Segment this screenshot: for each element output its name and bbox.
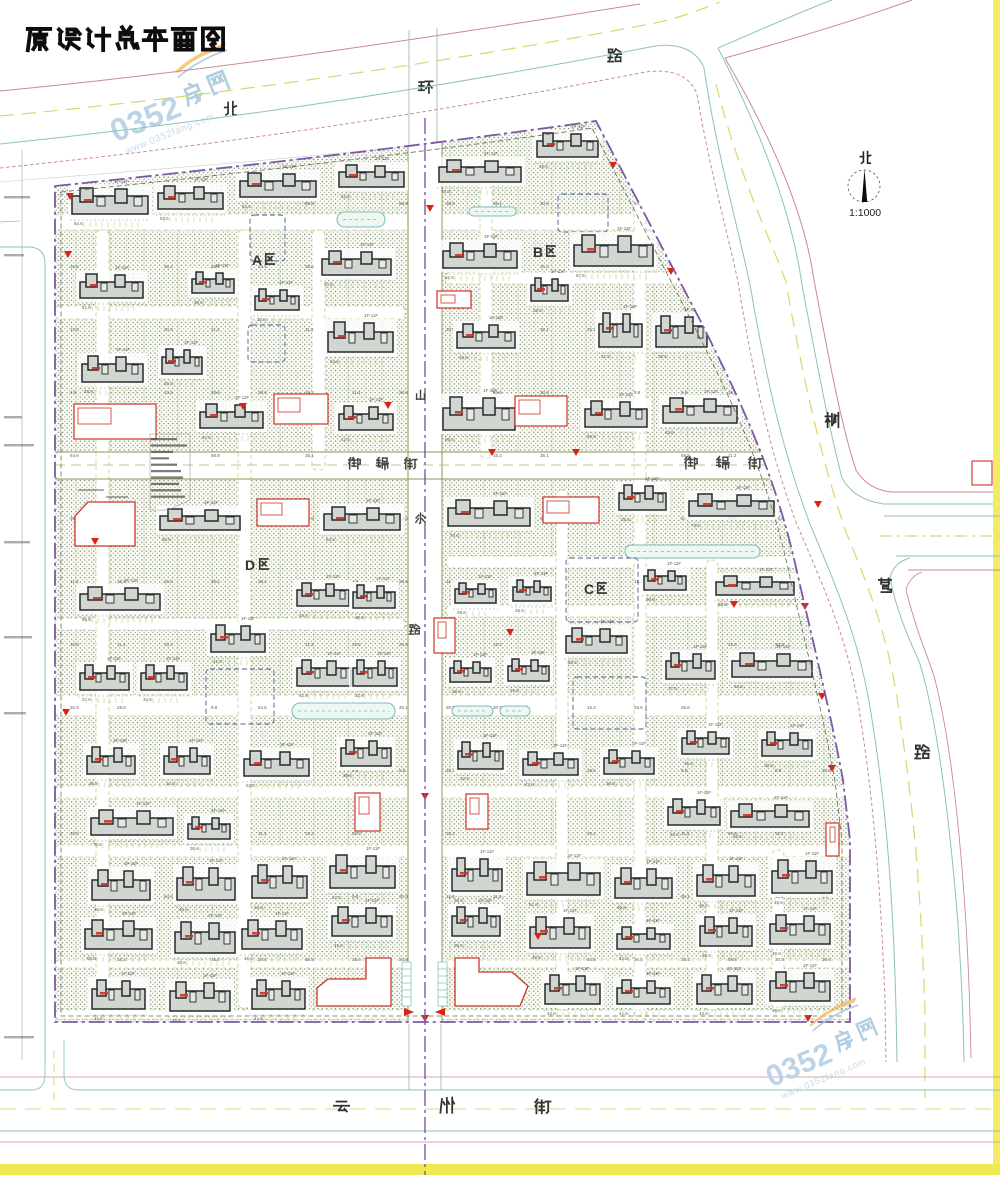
- svg-text:11.3: 11.3: [70, 579, 79, 584]
- svg-text:1F-11F: 1F-11F: [194, 177, 208, 182]
- svg-text:62.6: 62.6: [665, 430, 674, 435]
- svg-text:50.6: 50.6: [587, 434, 596, 439]
- svg-text:48.6: 48.6: [772, 1008, 781, 1013]
- svg-text:28.6: 28.6: [164, 381, 173, 386]
- svg-text:51.6: 51.6: [202, 435, 211, 440]
- svg-text:43.6: 43.6: [547, 1011, 556, 1016]
- svg-text:9.8: 9.8: [634, 390, 641, 395]
- svg-text:C: C: [584, 581, 594, 597]
- svg-text:41.6: 41.6: [94, 1016, 103, 1021]
- svg-text:1F-11F: 1F-11F: [115, 265, 129, 270]
- svg-text:1F-11F: 1F-11F: [241, 616, 255, 621]
- svg-text:53.6: 53.6: [330, 359, 339, 364]
- svg-text:1F-11F: 1F-11F: [377, 651, 391, 656]
- svg-text:26.6: 26.6: [634, 957, 643, 962]
- svg-text:26.6: 26.6: [728, 642, 737, 647]
- svg-text:28.6: 28.6: [352, 957, 361, 962]
- svg-text:1F-11F: 1F-11F: [484, 234, 498, 239]
- svg-text:64.6: 64.6: [242, 204, 251, 209]
- svg-text:1F-11F: 1F-11F: [553, 743, 567, 748]
- svg-text:1F-11F: 1F-11F: [600, 619, 614, 624]
- svg-text:1F-11F: 1F-11F: [215, 263, 229, 268]
- svg-text:1F-11F: 1F-11F: [107, 656, 121, 661]
- svg-text:1F-11F: 1F-11F: [279, 280, 293, 285]
- svg-text:1F-11F: 1F-11F: [759, 567, 773, 572]
- svg-text:13.5: 13.5: [164, 390, 173, 395]
- svg-text:26.6: 26.6: [681, 705, 690, 710]
- svg-text:9.8: 9.8: [681, 390, 688, 395]
- svg-text:48.6: 48.6: [244, 956, 253, 961]
- svg-text:1F-11F: 1F-11F: [646, 859, 660, 864]
- svg-text:15.2: 15.2: [211, 957, 220, 962]
- svg-text:38.6: 38.6: [764, 763, 773, 768]
- svg-text:1F-11F: 1F-11F: [189, 738, 203, 743]
- svg-text:1F-11F: 1F-11F: [326, 574, 340, 579]
- svg-text:1F-11F: 1F-11F: [729, 908, 743, 913]
- svg-text:1F-11F: 1F-11F: [646, 971, 660, 976]
- svg-text:64.6: 64.6: [164, 894, 173, 899]
- svg-text:30.9: 30.9: [399, 957, 408, 962]
- svg-text:1F-11F: 1F-11F: [166, 656, 180, 661]
- svg-text:15.2: 15.2: [493, 453, 502, 458]
- svg-text:41.6: 41.6: [619, 956, 628, 961]
- svg-text:11.3: 11.3: [305, 642, 314, 647]
- svg-text:1F-11F: 1F-11F: [478, 574, 492, 579]
- svg-text:35.1: 35.1: [305, 453, 314, 458]
- svg-text:42.6: 42.6: [341, 437, 350, 442]
- svg-text:1F-11F: 1F-11F: [805, 851, 819, 856]
- svg-text:28.6: 28.6: [587, 768, 596, 773]
- svg-text:30.9: 30.9: [540, 390, 549, 395]
- svg-text:34.6: 34.6: [143, 697, 152, 702]
- svg-text:15.2: 15.2: [305, 831, 314, 836]
- svg-text:64.6: 64.6: [326, 537, 335, 542]
- svg-text:1F-11F: 1F-11F: [736, 485, 750, 490]
- svg-text:67.6: 67.6: [576, 273, 585, 278]
- svg-text:1F-11F: 1F-11F: [646, 918, 660, 923]
- svg-text:57.6: 57.6: [324, 282, 333, 287]
- svg-text:35.1: 35.1: [164, 264, 173, 269]
- svg-text:9.8: 9.8: [399, 768, 406, 773]
- svg-text:60.6: 60.6: [445, 437, 454, 442]
- svg-text:1F-11F: 1F-11F: [366, 846, 380, 851]
- svg-text:1F-11F: 1F-11F: [693, 644, 707, 649]
- svg-text:40.6: 40.6: [299, 613, 308, 618]
- svg-text:1F-11F: 1F-11F: [563, 908, 577, 913]
- svg-text:46.6: 46.6: [459, 355, 468, 360]
- svg-text:1F-11F: 1F-11F: [774, 795, 788, 800]
- svg-text:26.6: 26.6: [164, 579, 173, 584]
- svg-text:49.6: 49.6: [539, 164, 548, 169]
- svg-text:51.6: 51.6: [82, 305, 91, 310]
- svg-text:1F-11F: 1F-11F: [113, 738, 127, 743]
- svg-text:40.6: 40.6: [702, 953, 711, 958]
- svg-text:61.6: 61.6: [529, 902, 538, 907]
- svg-text:38.6: 38.6: [454, 898, 463, 903]
- svg-text:41.6: 41.6: [619, 1011, 628, 1016]
- svg-text:15.2: 15.2: [540, 264, 549, 269]
- svg-text:66.6: 66.6: [733, 834, 742, 839]
- svg-text:70.6: 70.6: [441, 189, 450, 194]
- svg-text:1F-11F: 1F-11F: [235, 395, 249, 400]
- svg-text:48.6: 48.6: [774, 900, 783, 905]
- svg-text:1F-11F: 1F-11F: [776, 644, 790, 649]
- svg-text:26.6: 26.6: [399, 642, 408, 647]
- svg-text:26.6: 26.6: [70, 264, 79, 269]
- svg-text:1F-11F: 1F-11F: [116, 347, 130, 352]
- svg-text:1F-11F: 1F-11F: [124, 861, 138, 866]
- svg-text:1F-11F: 1F-11F: [617, 226, 631, 231]
- svg-text:15.2: 15.2: [493, 642, 502, 647]
- svg-text:26.6: 26.6: [822, 957, 831, 962]
- svg-text:1F-11F: 1F-11F: [619, 392, 633, 397]
- svg-text:28.6: 28.6: [211, 390, 220, 395]
- svg-text:1F-11F: 1F-11F: [360, 242, 374, 247]
- svg-text:35.1: 35.1: [399, 705, 408, 710]
- svg-text:15.2: 15.2: [587, 705, 596, 710]
- svg-text:30.9: 30.9: [775, 957, 784, 962]
- svg-text:29.6: 29.6: [510, 688, 519, 693]
- svg-text:64.6: 64.6: [587, 957, 596, 962]
- svg-text:1F-11F: 1F-11F: [209, 858, 223, 863]
- svg-text:1F-11F: 1F-11F: [282, 856, 296, 861]
- svg-text:37.6: 37.6: [668, 686, 677, 691]
- svg-text:73.6: 73.6: [691, 523, 700, 528]
- svg-text:68.6: 68.6: [734, 684, 743, 689]
- svg-text:1F-11F: 1F-11F: [368, 731, 382, 736]
- svg-text:48.6: 48.6: [532, 955, 541, 960]
- svg-text:35.1: 35.1: [164, 642, 173, 647]
- svg-text:32.6: 32.6: [257, 317, 266, 322]
- svg-text:64.6: 64.6: [74, 221, 83, 226]
- svg-text:35.1: 35.1: [211, 579, 220, 584]
- svg-text:1F-11F: 1F-11F: [704, 389, 718, 394]
- svg-text:55.6: 55.6: [87, 956, 96, 961]
- svg-text:33.6: 33.6: [460, 776, 469, 781]
- svg-text:62.6: 62.6: [445, 275, 454, 280]
- svg-text:30.9: 30.9: [399, 894, 408, 899]
- svg-text:70.6: 70.6: [93, 842, 102, 847]
- svg-text:35.1: 35.1: [446, 831, 455, 836]
- svg-text:1F-11F: 1F-11F: [122, 911, 136, 916]
- svg-text:53.6: 53.6: [332, 895, 341, 900]
- svg-text:35.1: 35.1: [540, 327, 549, 332]
- svg-text:1F-11F: 1F-11F: [327, 651, 341, 656]
- svg-text:30.6: 30.6: [194, 300, 203, 305]
- svg-text:1F-11F: 1F-11F: [567, 853, 581, 858]
- svg-text:1F-11F: 1F-11F: [204, 500, 218, 505]
- svg-text:1F-11F: 1F-11F: [375, 156, 389, 161]
- svg-text:30.9: 30.9: [70, 831, 79, 836]
- svg-text:43.6: 43.6: [525, 782, 534, 787]
- svg-text:30.9: 30.9: [540, 201, 549, 206]
- svg-text:1F-11F: 1F-11F: [136, 801, 150, 806]
- svg-text:30.9: 30.9: [70, 642, 79, 647]
- svg-text:25.6: 25.6: [533, 308, 542, 313]
- svg-text:30.9: 30.9: [446, 201, 455, 206]
- svg-text:35.1: 35.1: [587, 327, 596, 332]
- svg-text:35.1: 35.1: [681, 957, 690, 962]
- svg-text:1F-11F: 1F-11F: [478, 898, 492, 903]
- svg-text:32.6: 32.6: [355, 693, 364, 698]
- svg-text:64.6: 64.6: [258, 705, 267, 710]
- svg-text:43.6: 43.6: [254, 905, 263, 910]
- svg-text:70.6: 70.6: [450, 533, 459, 538]
- svg-text:1F-11F: 1F-11F: [790, 723, 804, 728]
- svg-text:53.6: 53.6: [246, 783, 255, 788]
- svg-text:36.6: 36.6: [89, 781, 98, 786]
- svg-text:26.6: 26.6: [515, 608, 524, 613]
- svg-text:13.5: 13.5: [70, 327, 79, 332]
- svg-text:46.6: 46.6: [179, 907, 188, 912]
- svg-text:1F-11F: 1F-11F: [531, 650, 545, 655]
- svg-text:D: D: [245, 557, 255, 573]
- svg-text:28.6: 28.6: [258, 390, 267, 395]
- svg-text:1F-11F: 1F-11F: [275, 911, 289, 916]
- svg-text:1F-11F: 1F-11F: [376, 576, 390, 581]
- svg-text:26.6: 26.6: [352, 642, 361, 647]
- svg-text:30.6: 30.6: [646, 597, 655, 602]
- svg-text:48.6: 48.6: [772, 951, 781, 956]
- svg-text:1F-11F: 1F-11F: [365, 898, 379, 903]
- svg-text:1F-11F: 1F-11F: [697, 790, 711, 795]
- svg-text:46.6: 46.6: [94, 907, 103, 912]
- svg-text:A: A: [252, 252, 262, 268]
- svg-text:30.6: 30.6: [190, 846, 199, 851]
- svg-text:30.9: 30.9: [70, 705, 79, 710]
- svg-text:35.1: 35.1: [493, 201, 502, 206]
- svg-text:1F-11F: 1F-11F: [623, 304, 637, 309]
- svg-text:1F-11F: 1F-11F: [211, 808, 225, 813]
- svg-text:58.8: 58.8: [305, 957, 314, 962]
- svg-text:39.6: 39.6: [658, 354, 667, 359]
- svg-text:28.6: 28.6: [305, 264, 314, 269]
- svg-text:37.6: 37.6: [82, 697, 91, 702]
- svg-text:1F-11F: 1F-11F: [803, 963, 817, 968]
- svg-text:1F-11F: 1F-11F: [645, 476, 659, 481]
- svg-text:58.8: 58.8: [352, 831, 361, 836]
- svg-text:28.6: 28.6: [399, 579, 408, 584]
- svg-text:36.6: 36.6: [454, 943, 463, 948]
- svg-text:1F-11F: 1F-11F: [281, 971, 295, 976]
- svg-text:68.6: 68.6: [82, 617, 91, 622]
- svg-text:46.6: 46.6: [699, 903, 708, 908]
- svg-text:1F-11F: 1F-11F: [124, 578, 138, 583]
- svg-text:34.6: 34.6: [166, 781, 175, 786]
- svg-text:B: B: [533, 244, 543, 260]
- svg-text:1F-11F: 1F-11F: [184, 340, 198, 345]
- svg-text:66.6: 66.6: [718, 602, 727, 607]
- svg-text:1F-11F: 1F-11F: [366, 498, 380, 503]
- svg-text:42.6: 42.6: [213, 659, 222, 664]
- svg-text:64.6: 64.6: [70, 453, 79, 458]
- svg-text:35.1: 35.1: [587, 831, 596, 836]
- svg-text:53.6: 53.6: [160, 216, 169, 221]
- svg-text:11.3: 11.3: [258, 831, 267, 836]
- svg-text:26.6: 26.6: [399, 390, 408, 395]
- svg-text:1F-11F: 1F-11F: [493, 491, 507, 496]
- svg-text:38.6: 38.6: [343, 773, 352, 778]
- svg-text:1F-11F: 1F-11F: [534, 571, 548, 576]
- svg-text:11.3: 11.3: [117, 642, 126, 647]
- svg-text:26.6: 26.6: [634, 705, 643, 710]
- svg-text:28.6: 28.6: [117, 705, 126, 710]
- svg-text:29.6: 29.6: [452, 689, 461, 694]
- svg-text:1F-11F: 1F-11F: [551, 269, 565, 274]
- svg-text:11.3: 11.3: [352, 390, 361, 395]
- svg-text:41.6: 41.6: [254, 1016, 263, 1021]
- svg-text:48.6: 48.6: [334, 943, 343, 948]
- svg-text:35.6: 35.6: [621, 517, 630, 522]
- svg-text:1F-11F: 1F-11F: [208, 913, 222, 918]
- svg-text:1F-11F: 1F-11F: [473, 652, 487, 657]
- svg-text:9.8: 9.8: [775, 768, 782, 773]
- svg-text:58.8: 58.8: [399, 201, 408, 206]
- svg-text:35.6: 35.6: [684, 761, 693, 766]
- svg-text:38.6: 38.6: [606, 781, 615, 786]
- svg-text:1F-11F: 1F-11F: [364, 313, 378, 318]
- svg-text:15.2: 15.2: [117, 957, 126, 962]
- svg-text:1:1000: 1:1000: [849, 207, 881, 219]
- svg-text:42.6: 42.6: [299, 693, 308, 698]
- svg-text:28.6: 28.6: [822, 768, 831, 773]
- svg-text:11.3: 11.3: [775, 831, 784, 836]
- svg-text:1F-11F: 1F-11F: [667, 561, 681, 566]
- svg-text:11.3: 11.3: [211, 327, 220, 332]
- svg-text:49.6: 49.6: [568, 660, 577, 665]
- svg-text:1F-11F: 1F-11F: [484, 151, 498, 156]
- svg-text:1F-11F: 1F-11F: [121, 971, 135, 976]
- svg-text:11.3: 11.3: [728, 453, 737, 458]
- svg-text:29.6: 29.6: [457, 610, 466, 615]
- svg-text:30.6: 30.6: [355, 615, 364, 620]
- svg-text:49.6: 49.6: [84, 389, 93, 394]
- svg-text:1F-11F: 1F-11F: [369, 397, 383, 402]
- svg-text:1F-11F: 1F-11F: [203, 973, 217, 978]
- svg-text:48.6: 48.6: [177, 960, 186, 965]
- svg-text:53.6: 53.6: [341, 194, 350, 199]
- svg-text:40.6: 40.6: [670, 832, 679, 837]
- svg-text:1F-11F: 1F-11F: [803, 906, 817, 911]
- svg-text:31.6: 31.6: [601, 354, 610, 359]
- svg-text:1F-11F: 1F-11F: [483, 733, 497, 738]
- svg-text:35.1: 35.1: [681, 894, 690, 899]
- svg-text:1F-11F: 1F-11F: [708, 722, 722, 727]
- svg-text:1F-11F: 1F-11F: [727, 966, 741, 971]
- svg-text:35.1: 35.1: [446, 768, 455, 773]
- svg-text:1F-11F: 1F-11F: [480, 849, 494, 854]
- svg-text:1F-11F: 1F-11F: [280, 742, 294, 747]
- svg-text:9.8: 9.8: [70, 390, 77, 395]
- svg-text:1F-11F: 1F-11F: [729, 856, 743, 861]
- svg-text:43.6: 43.6: [699, 1011, 708, 1016]
- svg-text:1F-11F: 1F-11F: [483, 388, 497, 393]
- svg-text:58.8: 58.8: [211, 453, 220, 458]
- svg-text:1F-11F: 1F-11F: [632, 741, 646, 746]
- svg-text:35.1: 35.1: [540, 453, 549, 458]
- svg-text:9.8: 9.8: [681, 768, 688, 773]
- svg-text:58.8: 58.8: [305, 201, 314, 206]
- svg-text:45.6: 45.6: [617, 905, 626, 910]
- svg-text:11.3: 11.3: [681, 831, 690, 836]
- svg-text:30.9: 30.9: [164, 327, 173, 332]
- svg-text:9.8: 9.8: [211, 705, 218, 710]
- svg-text:1F-11F: 1F-11F: [489, 315, 503, 320]
- svg-text:11.3: 11.3: [305, 327, 314, 332]
- svg-text:68.6: 68.6: [162, 537, 171, 542]
- svg-text:35.1: 35.1: [258, 579, 267, 584]
- svg-text:9.8: 9.8: [352, 894, 359, 899]
- svg-text:1F-11F: 1F-11F: [575, 966, 589, 971]
